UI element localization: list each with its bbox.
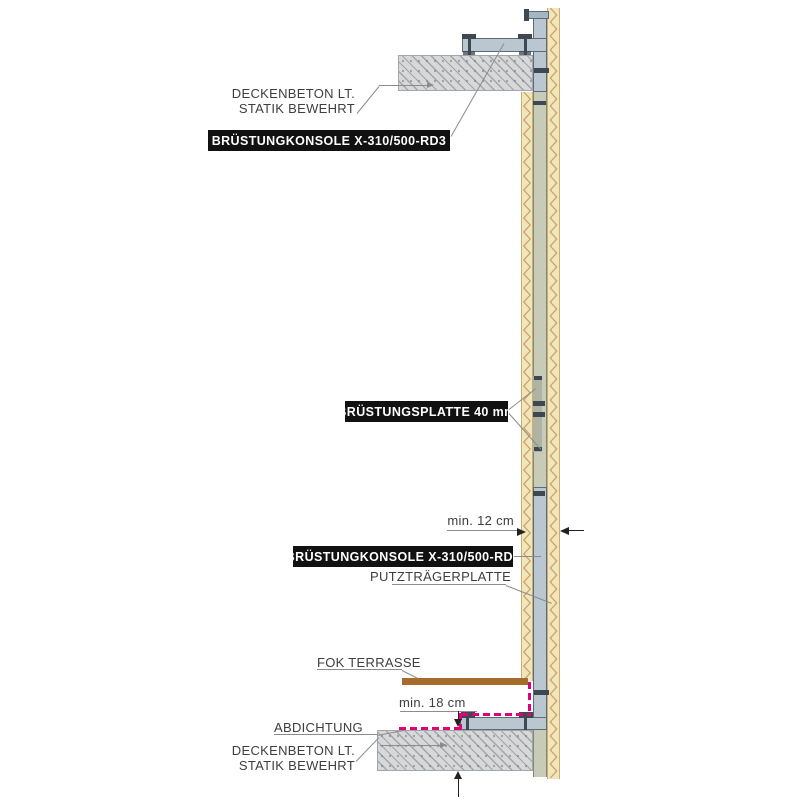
parapet-console-section-drawing: DECKENBETON LT. STATIK BEWEHRT BRÜSTUNGK…: [0, 0, 800, 800]
fixing-bolt-mark: [533, 412, 545, 417]
fixing-bolt-mark: [534, 690, 549, 695]
label-konsole-top: BRÜSTUNGKONSOLE X-310/500-RD3: [208, 130, 450, 151]
label-deckenbeton-top: DECKENBETON LT. STATIK BEWEHRT: [225, 87, 355, 116]
console-top-cap: [528, 11, 549, 19]
label-deckenbeton-bottom: DECKENBETON LT. STATIK BEWEHRT: [225, 744, 355, 773]
label-line: DECKENBETON LT.: [225, 744, 355, 759]
fixing-bolt-mark: [533, 401, 545, 406]
label-underline: [317, 669, 402, 670]
leader-arrow: [427, 82, 434, 88]
dim-line: [447, 530, 517, 531]
label-line: STATIK BEWEHRT: [225, 102, 355, 117]
label-underline: [392, 584, 506, 585]
label-konsole-bottom: BRÜSTUNGKONSOLE X-310/500-RD3: [293, 546, 513, 567]
dim-stem: [458, 711, 459, 719]
waterproofing-line: [399, 727, 461, 730]
console-base-plate: [460, 717, 547, 730]
leader-line: [379, 85, 427, 86]
reference-arrow-stem: [458, 779, 459, 797]
dim-arrow-right: [517, 528, 526, 536]
waterproofing-line: [528, 682, 531, 714]
fixing-bolt-mark: [534, 376, 542, 380]
label-bruestungsplatte: BRÜSTUNGSPLATTE 40 mm: [345, 401, 508, 422]
label-line: DECKENBETON LT.: [225, 87, 355, 102]
label-putztraegerplatte: PUTZTRÄGERPLATTE: [370, 570, 505, 585]
console-arm: [462, 38, 547, 52]
fixing-bolt-mark: [533, 491, 545, 496]
insulation-outer-layer: [547, 8, 560, 779]
waterproofing-line: [461, 713, 531, 716]
dim-line: [569, 530, 584, 531]
dim-line: [400, 711, 477, 712]
leader-line: [357, 86, 380, 114]
dim-18cm: min. 18 cm: [399, 696, 463, 711]
dim-arrow-down: [454, 719, 462, 727]
leader-arrow: [440, 742, 447, 748]
leader-line: [356, 737, 380, 762]
label-line: STATIK BEWEHRT: [225, 759, 355, 774]
ceiling-slab-bottom: [377, 730, 533, 771]
fixing-bolt-mark: [534, 68, 549, 73]
leader-line: [380, 745, 440, 746]
terrace-floor-line: [402, 678, 528, 685]
insulation-hatch: [548, 8, 559, 779]
reference-arrow-up: [454, 771, 462, 779]
dim-arrow-left: [560, 527, 569, 535]
cap-bolt: [524, 9, 529, 21]
fixing-bolt-mark: [533, 101, 546, 105]
label-underline: [274, 734, 377, 735]
dim-12cm: min. 12 cm: [440, 514, 514, 529]
leader-line: [514, 556, 541, 557]
